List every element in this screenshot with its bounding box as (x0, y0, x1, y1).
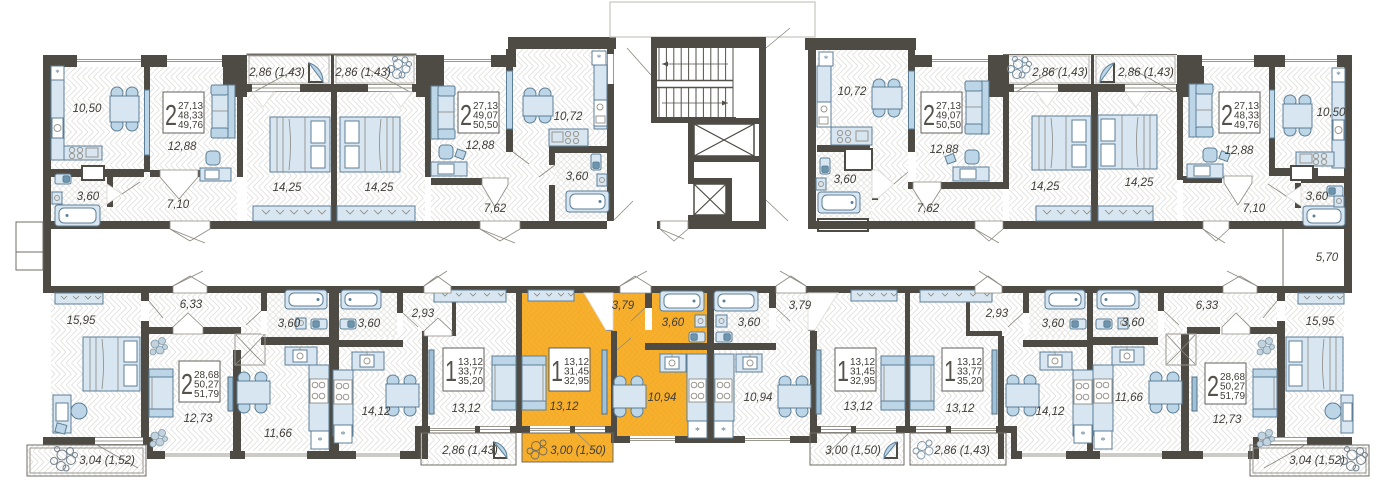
svg-text:3,60: 3,60 (77, 191, 100, 203)
svg-text:*: * (695, 426, 700, 437)
svg-text:3,04 (1,52): 3,04 (1,52) (79, 455, 135, 467)
svg-text:15,95: 15,95 (67, 315, 96, 327)
svg-text:2: 2 (165, 100, 177, 132)
svg-text:2: 2 (923, 100, 935, 132)
svg-text:2,93: 2,93 (985, 308, 1009, 320)
svg-text:14,25: 14,25 (1031, 181, 1060, 193)
svg-text:10,94: 10,94 (744, 392, 773, 404)
svg-text:3,60: 3,60 (662, 317, 685, 329)
svg-text:10,50: 10,50 (1317, 107, 1346, 119)
svg-text:10,72: 10,72 (838, 86, 867, 98)
svg-text:3,60: 3,60 (1306, 191, 1329, 203)
svg-text:32,95: 32,95 (564, 376, 589, 387)
svg-text:*: * (597, 53, 602, 63)
svg-text:7,10: 7,10 (167, 199, 190, 211)
svg-text:7,62: 7,62 (917, 203, 940, 215)
svg-text:6,33: 6,33 (180, 299, 203, 311)
svg-text:*: * (341, 430, 346, 441)
svg-text:3,79: 3,79 (789, 300, 812, 312)
svg-text:3,60: 3,60 (1122, 317, 1145, 329)
svg-text:3,04 (1,52): 3,04 (1,52) (1289, 455, 1345, 467)
svg-text:13,12: 13,12 (946, 403, 975, 415)
svg-text:*: * (721, 426, 726, 437)
svg-text:1: 1 (944, 356, 956, 388)
svg-text:3,00 (1,50): 3,00 (1,50) (825, 445, 881, 457)
svg-text:50,50: 50,50 (473, 120, 498, 131)
svg-text:3,79: 3,79 (612, 300, 635, 312)
svg-text:2: 2 (460, 100, 472, 132)
svg-text:*: * (55, 68, 60, 78)
svg-text:2,86 (1,43): 2,86 (1,43) (933, 445, 990, 457)
svg-text:3,60: 3,60 (566, 171, 589, 183)
svg-text:6,33: 6,33 (1196, 300, 1219, 312)
svg-text:12,73: 12,73 (184, 413, 213, 425)
svg-text:10,72: 10,72 (554, 111, 583, 123)
svg-text:2,93: 2,93 (411, 308, 435, 320)
svg-text:10,50: 10,50 (73, 103, 102, 115)
svg-text:51,79: 51,79 (1220, 391, 1245, 402)
svg-text:12,88: 12,88 (466, 140, 495, 152)
svg-text:1: 1 (551, 356, 563, 388)
svg-text:*: * (824, 54, 829, 64)
svg-text:32,95: 32,95 (850, 376, 875, 387)
svg-text:7,10: 7,10 (1243, 203, 1266, 215)
svg-text:2,86 (1,43): 2,86 (1,43) (441, 445, 498, 457)
svg-text:*: * (318, 436, 323, 447)
svg-text:12,88: 12,88 (168, 141, 197, 153)
svg-text:*: * (1336, 70, 1341, 80)
svg-text:15,95: 15,95 (1306, 316, 1335, 328)
svg-text:3,60: 3,60 (278, 318, 301, 330)
svg-text:13,12: 13,12 (452, 403, 481, 415)
svg-text:49,76: 49,76 (178, 120, 203, 131)
svg-text:2: 2 (181, 369, 193, 401)
svg-text:3,60: 3,60 (1042, 318, 1065, 330)
svg-text:2: 2 (1221, 100, 1233, 132)
svg-text:3,00 (1,50): 3,00 (1,50) (550, 445, 606, 457)
svg-text:13,12: 13,12 (844, 401, 873, 413)
svg-text:2,86 (1,43): 2,86 (1,43) (334, 67, 391, 79)
svg-text:1: 1 (837, 356, 849, 388)
svg-text:11,66: 11,66 (264, 428, 293, 440)
svg-text:3,60: 3,60 (738, 317, 761, 329)
svg-text:*: * (1081, 430, 1086, 441)
svg-text:2: 2 (1207, 371, 1219, 403)
svg-text:35,20: 35,20 (458, 376, 483, 387)
svg-text:51,79: 51,79 (194, 389, 219, 400)
svg-text:7,62: 7,62 (484, 203, 507, 215)
svg-text:2,86 (1,43): 2,86 (1,43) (248, 67, 305, 79)
svg-text:49,76: 49,76 (1234, 120, 1259, 131)
svg-text:12,73: 12,73 (1213, 414, 1242, 426)
svg-text:3,60: 3,60 (834, 174, 857, 186)
svg-text:14,12: 14,12 (362, 406, 391, 418)
svg-text:2,86 (1,43): 2,86 (1,43) (1031, 67, 1088, 79)
svg-text:14,25: 14,25 (1125, 177, 1154, 189)
svg-text:50,50: 50,50 (936, 120, 961, 131)
svg-text:12,88: 12,88 (1225, 145, 1254, 157)
svg-text:1: 1 (445, 356, 457, 388)
svg-text:12,88: 12,88 (930, 144, 959, 156)
svg-text:35,20: 35,20 (957, 376, 982, 387)
svg-text:5,70: 5,70 (1316, 252, 1339, 264)
svg-text:2,86 (1,43): 2,86 (1,43) (1117, 67, 1174, 79)
svg-text:14,25: 14,25 (273, 182, 302, 194)
svg-text:13,12: 13,12 (550, 401, 579, 413)
svg-text:10,94: 10,94 (648, 392, 677, 404)
svg-text:*: * (1101, 436, 1106, 447)
svg-text:3,60: 3,60 (358, 318, 381, 330)
svg-text:11,66: 11,66 (1115, 392, 1144, 404)
svg-text:14,12: 14,12 (1036, 406, 1065, 418)
svg-text:14,25: 14,25 (365, 182, 394, 194)
